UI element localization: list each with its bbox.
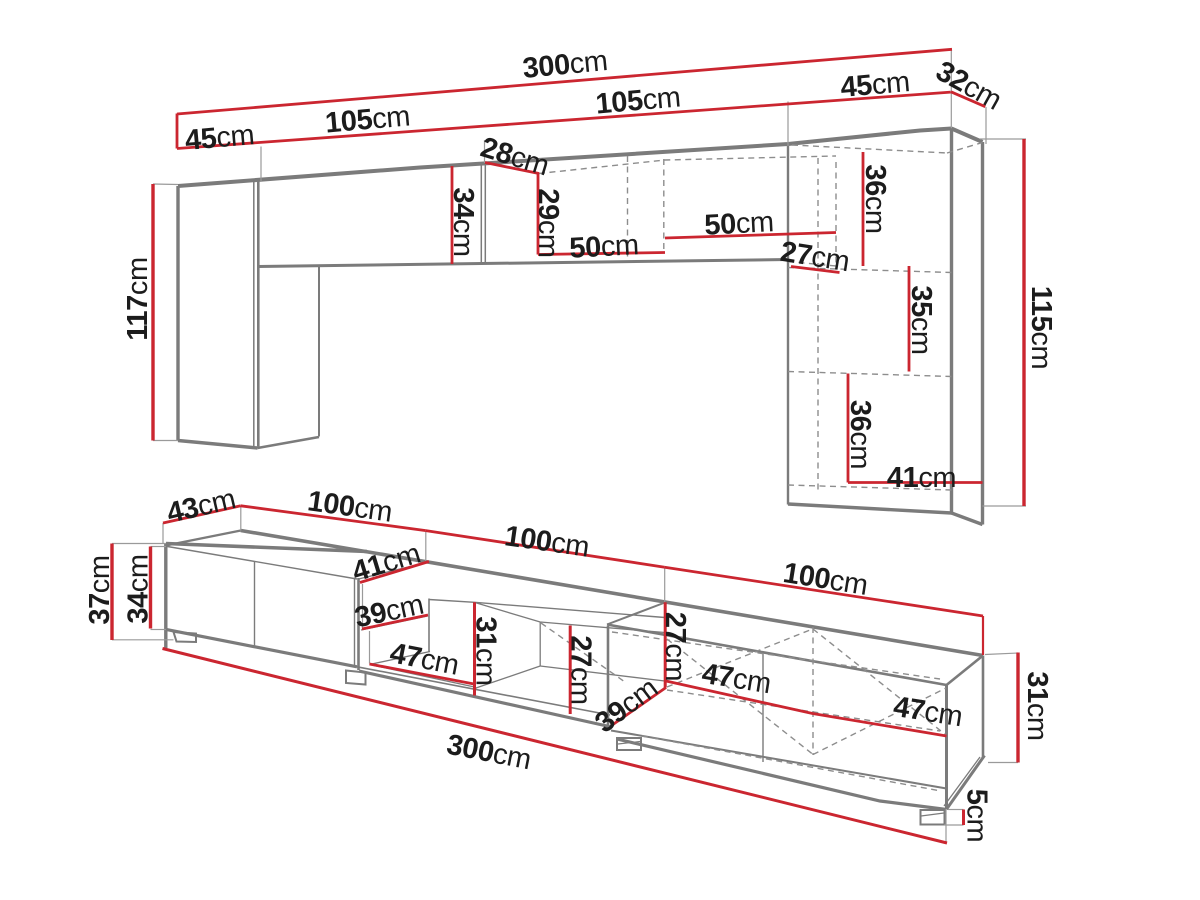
- svg-text:36cm: 36cm: [859, 164, 891, 233]
- svg-text:35cm: 35cm: [905, 285, 937, 354]
- svg-text:29cm: 29cm: [532, 188, 564, 257]
- svg-text:27cm: 27cm: [565, 635, 597, 704]
- svg-text:34cm: 34cm: [123, 554, 155, 623]
- svg-text:27cm: 27cm: [659, 612, 691, 681]
- svg-text:31cm: 31cm: [470, 616, 502, 685]
- svg-text:45cm: 45cm: [184, 119, 256, 157]
- svg-text:50cm: 50cm: [704, 206, 775, 242]
- svg-text:50cm: 50cm: [569, 229, 640, 265]
- svg-text:37cm: 37cm: [84, 555, 116, 624]
- svg-text:31cm: 31cm: [1021, 671, 1053, 740]
- svg-text:34cm: 34cm: [447, 187, 479, 256]
- svg-text:41cm: 41cm: [887, 462, 956, 494]
- svg-text:45cm: 45cm: [839, 66, 911, 104]
- svg-text:5cm: 5cm: [961, 789, 993, 843]
- svg-text:117cm: 117cm: [122, 257, 154, 340]
- svg-text:115cm: 115cm: [1025, 286, 1057, 369]
- svg-text:36cm: 36cm: [844, 400, 876, 469]
